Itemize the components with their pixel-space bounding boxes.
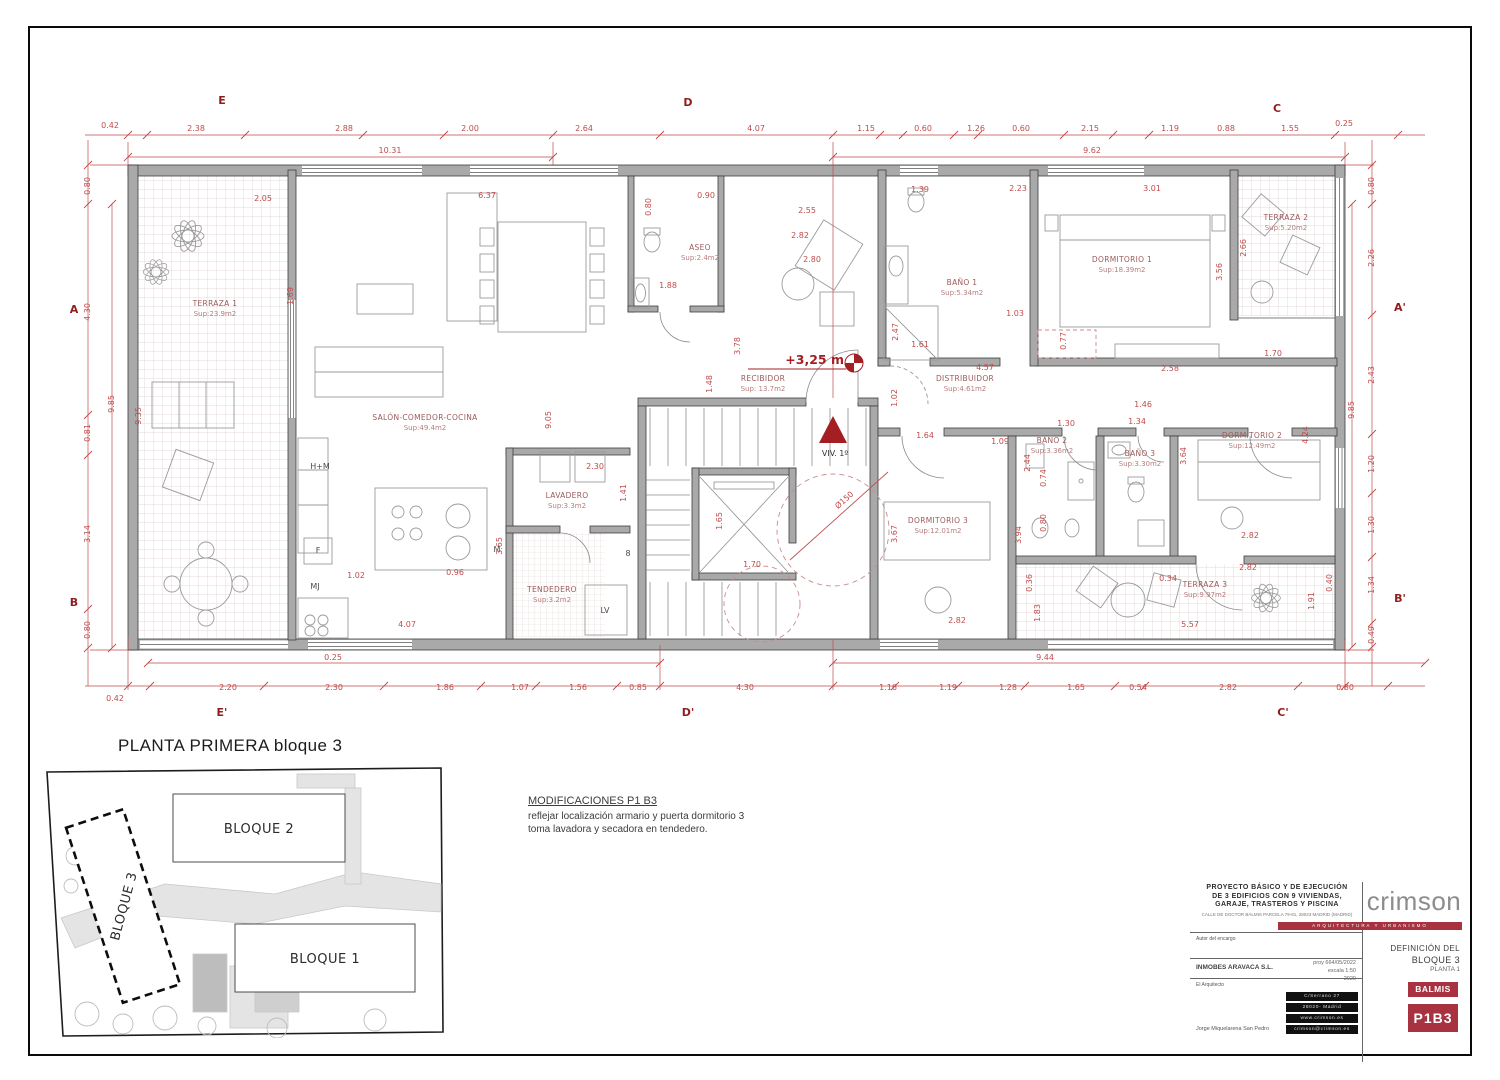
section-letter: B <box>70 596 78 609</box>
dimension-label: 1.86 <box>436 683 454 692</box>
architect-label: El Arquitecto <box>1196 982 1224 988</box>
terrace-hatch <box>138 176 1335 639</box>
dimension-label: 3.01 <box>1143 184 1161 193</box>
crimson-logo: crimson <box>1362 886 1466 917</box>
room-name-label: RECIBIDOR <box>741 374 785 383</box>
dimension-label: 1.65 <box>1067 683 1085 692</box>
dimension-label: 2.82 <box>1219 683 1237 692</box>
dimension-label: 2.58 <box>1161 364 1179 373</box>
dimension-label: 0.60 <box>1012 124 1030 133</box>
entrance-arrow-icon <box>819 416 847 443</box>
dimension-label: 0.96 <box>446 568 464 577</box>
dimension-label: 1.55 <box>1281 124 1299 133</box>
dimension-label: 2.44 <box>1023 454 1032 472</box>
dimension-label: 9.35 <box>134 407 143 425</box>
dimension-label: 0.80 <box>83 177 92 195</box>
dimension-label: 1.70 <box>1264 349 1282 358</box>
dimension-label: 10.31 <box>379 146 402 155</box>
dimension-label: 9.85 <box>107 395 116 413</box>
dimension-label: 9.85 <box>1347 401 1356 419</box>
room-name-label: TERRAZA 3 <box>1182 580 1228 589</box>
appliance-label: M <box>494 545 501 554</box>
section-letter: A' <box>1394 301 1406 314</box>
dimension-label: 1.19 <box>1161 124 1179 133</box>
dimension-label: 1.19 <box>939 683 957 692</box>
dimension-label: 0.40 <box>1325 574 1334 592</box>
dimension-label: 1.15 <box>857 124 875 133</box>
room-area-label: Sup:5.34m2 <box>941 289 984 297</box>
project-title: PROYECTO BÁSICO Y DE EJECUCIÓN DE 3 EDIF… <box>1194 884 1360 910</box>
section-letter: E' <box>217 706 228 719</box>
dimension-label: 1.02 <box>890 389 899 407</box>
dimension-label: 1.83 <box>1033 604 1042 622</box>
dimension-label: 1.34 <box>1128 417 1146 426</box>
project-address: CALLE DE DOCTOR BALMIS PARCELA 79-81, 28… <box>1194 912 1360 918</box>
dimension-label: 2.82 <box>1241 531 1259 540</box>
dimension-label: 1.56 <box>569 683 587 692</box>
appliance-label: H+M <box>310 462 330 471</box>
room-name-label: BAÑO 1 <box>947 278 978 287</box>
appliance-label: MJ <box>310 582 319 591</box>
room-name-label: ASEO <box>689 243 711 252</box>
dimension-label: 4.30 <box>83 303 92 321</box>
dimension-label: 1.91 <box>1307 592 1316 610</box>
dimension-label: 4.57 <box>976 363 994 372</box>
dimension-label: 0.74 <box>1039 469 1048 487</box>
dimension-label: 0.80 <box>1367 177 1376 195</box>
dimension-label: 0.25 <box>324 653 342 662</box>
dimension-label: 0.49 <box>1367 626 1376 644</box>
room-area-label: Sup: 13.7m2 <box>741 385 786 393</box>
dimension-label: 0.60 <box>914 124 932 133</box>
room-name-label: DORMITORIO 2 <box>1222 431 1282 440</box>
room-area-label: Sup:18.39m2 <box>1099 266 1146 274</box>
room-name-label: DORMITORIO 3 <box>908 516 968 525</box>
dimension-label: 0.85 <box>629 683 647 692</box>
dimension-label: 0.36 <box>1025 574 1034 592</box>
dimension-label: 5.57 <box>1181 620 1199 629</box>
dimension-label: 2.30 <box>586 462 604 471</box>
dimension-label: 1.41 <box>619 484 628 502</box>
room-area-label: Sup:23.9m2 <box>194 310 237 318</box>
section-letter: C <box>1273 102 1281 115</box>
dimension-label: 2.38 <box>187 124 205 133</box>
dimension-label: 3.94 <box>1014 526 1023 544</box>
dimension-label: 0.80 <box>644 198 653 216</box>
dimension-label: 1.88 <box>659 281 677 290</box>
dimension-label: 4.07 <box>747 124 765 133</box>
dimension-label: 2.15 <box>1081 124 1099 133</box>
modifications-note: MODIFICACIONES P1 B3 reflejar localizaci… <box>528 795 744 836</box>
unit-label: VIV. 1º <box>822 449 848 458</box>
dimension-label: 0.80 <box>83 621 92 639</box>
project-year: 2020 <box>1344 976 1356 982</box>
dimension-label: 1.03 <box>1006 309 1024 318</box>
level-label: +3,25 m <box>785 352 844 367</box>
room-area-label: Sup:12.49m2 <box>1229 442 1276 450</box>
room-name-label: SALÓN-COMEDOR-COCINA <box>372 413 478 422</box>
page-title: PLANTA PRIMERA bloque 3 <box>118 736 342 756</box>
room-name-label: LAVADERO <box>546 491 589 500</box>
dimension-label: 2.30 <box>325 683 343 692</box>
dimension-label: 1.16 <box>879 683 897 692</box>
bloque-2-label: BLOQUE 2 <box>224 822 294 837</box>
sheet-definition: DEFINICIÓN DEL BLOQUE 3 PLANTA 1 <box>1310 944 1460 973</box>
section-letter: D <box>683 96 692 109</box>
dimension-label: 1.20 <box>1367 455 1376 473</box>
room-area-label: Sup:2.4m2 <box>681 254 719 262</box>
dimension-label: Ø150 <box>833 489 856 511</box>
dimension-label: 0.42 <box>106 694 124 703</box>
dimension-label: 0.80 <box>1039 514 1048 532</box>
dimension-label: 4.30 <box>736 683 754 692</box>
dimension-label: 1.34 <box>1367 576 1376 594</box>
dimension-label: 0.54 <box>1129 683 1147 692</box>
dimension-label: 2.05 <box>254 194 272 203</box>
dimension-label: 0.25 <box>1335 119 1353 128</box>
modifications-heading: MODIFICACIONES P1 B3 <box>528 795 744 807</box>
dimension-label: 0.90 <box>697 191 715 200</box>
section-letter: A <box>70 303 79 316</box>
dimension-label: 2.26 <box>1367 249 1376 267</box>
section-letter: B' <box>1394 592 1406 605</box>
room-area-label: Sup:4.61m2 <box>944 385 987 393</box>
dimension-label: 2.82 <box>1239 563 1257 572</box>
room-name-label: BAÑO 3 <box>1125 449 1156 458</box>
section-letter: D' <box>682 706 695 719</box>
room-area-label: Sup:3.2m2 <box>533 596 571 604</box>
dimension-label: 1.70 <box>743 560 761 569</box>
dimension-label: 9.62 <box>1083 146 1101 155</box>
room-area-label: Sup:5.20m2 <box>1265 224 1308 232</box>
client-name: INMOBES ARAVACA S.L. <box>1196 964 1273 971</box>
dimension-label: 1.64 <box>916 431 934 440</box>
badge-p1b3: P1B3 <box>1408 1004 1458 1032</box>
turning-circles <box>724 472 889 642</box>
dimension-label: 2.55 <box>798 206 816 215</box>
section-letter: E <box>218 94 226 107</box>
dimension-label: 9.05 <box>544 411 553 429</box>
dimension-label: 1.07 <box>511 683 529 692</box>
dimension-label: 1.61 <box>911 340 929 349</box>
room-name-label: TERRAZA 2 <box>1263 213 1309 222</box>
modifications-line: reflejar localización armario y puerta d… <box>528 810 744 823</box>
room-name-label: TENDEDERO <box>526 585 577 594</box>
dimension-label: 3.64 <box>1179 447 1188 465</box>
dimension-label: 1.09 <box>991 437 1009 446</box>
room-name-label: TERRAZA 1 <box>192 299 238 308</box>
dimension-label: 3.56 <box>1215 263 1224 281</box>
dimension-label: 2.82 <box>791 231 809 240</box>
dimension-label: 1.65 <box>715 512 724 530</box>
floor-plan: +3,25 m VIV. 1º TERRAZA 1Sup:23.9m2SALÓN… <box>0 0 1500 760</box>
dimension-label: 2.82 <box>948 616 966 625</box>
dimension-label: 2.00 <box>461 124 479 133</box>
dimension-label: 6.37 <box>478 191 496 200</box>
dimension-label: 2.66 <box>1239 239 1248 257</box>
dimension-label: 0.80 <box>1336 683 1354 692</box>
dimension-label: 4.24 <box>1301 426 1310 444</box>
bloque-1-label: BLOQUE 1 <box>290 952 360 967</box>
room-area-label: Sup:3.30m2 <box>1119 460 1162 468</box>
dimension-label: 0.81 <box>83 424 92 442</box>
dimension-label: 2.47 <box>891 323 900 341</box>
dimension-label: 1.02 <box>347 571 365 580</box>
drawing-sheet: +3,25 m VIV. 1º TERRAZA 1Sup:23.9m2SALÓN… <box>0 0 1500 1080</box>
site-map: BLOQUE 2 BLOQUE 1 BLOQUE 3 <box>45 766 445 1038</box>
dimension-label: 3.14 <box>83 525 92 543</box>
room-area-label: Sup:3.36m2 <box>1031 447 1074 455</box>
dimension-label: 2.88 <box>335 124 353 133</box>
appliance-label: 8 <box>625 549 630 558</box>
client-label: Autor del encargo <box>1196 936 1235 942</box>
dimension-label: 1.69 <box>286 287 295 305</box>
dimension-label: 2.20 <box>219 683 237 692</box>
room-name-label: BAÑO 2 <box>1037 436 1068 445</box>
dimension-label: 2.80 <box>803 255 821 264</box>
room-area-label: Sup:12.01m2 <box>915 527 962 535</box>
badge-balmis: BALMIS <box>1408 982 1458 997</box>
section-letter: C' <box>1277 706 1288 719</box>
dimension-label: 1.28 <box>999 683 1017 692</box>
dimension-label: 3.67 <box>890 525 899 543</box>
dimension-label: 1.30 <box>1367 516 1376 534</box>
dimension-label: 2.23 <box>1009 184 1027 193</box>
dimension-label: 9.44 <box>1036 653 1054 662</box>
modifications-line: toma lavadora y secadora en tendedero. <box>528 823 744 836</box>
appliance-label: F <box>316 546 321 555</box>
dimension-label: 4.07 <box>398 620 416 629</box>
dimension-label: 1.46 <box>1134 400 1152 409</box>
room-area-label: Sup:9.97m2 <box>1184 591 1227 599</box>
room-name-label: DORMITORIO 1 <box>1092 255 1152 264</box>
dimension-label: 0.88 <box>1217 124 1235 133</box>
dimension-label: 1.48 <box>705 375 714 393</box>
room-name-label: DISTRIBUIDOR <box>936 374 994 383</box>
title-block: PROYECTO BÁSICO Y DE EJECUCIÓN DE 3 EDIF… <box>1190 882 1468 1062</box>
dimension-label: 1.39 <box>911 185 929 194</box>
dimension-label: 1.30 <box>1057 419 1075 428</box>
dimension-label: 0.34 <box>1159 574 1177 583</box>
crimson-tagline: ARQUITECTURA Y URBANISMO <box>1278 922 1462 930</box>
dimension-label: 2.64 <box>575 124 593 133</box>
studio-address-box: C/Serrano 27 28020- Madrid www.crimson.e… <box>1286 992 1358 1036</box>
dimension-label: 3.78 <box>733 337 742 355</box>
appliance-label: LV <box>600 606 610 615</box>
room-area-label: Sup:3.3m2 <box>548 502 586 510</box>
room-area-label: Sup:49.4m2 <box>404 424 447 432</box>
dimension-label: 1.26 <box>967 124 985 133</box>
architect-name: Jorge Miquelarena San Pedro <box>1196 1026 1269 1032</box>
dimension-label: 0.77 <box>1059 332 1068 350</box>
dimension-label: 0.42 <box>101 121 119 130</box>
dimension-label: 2.43 <box>1367 366 1376 384</box>
